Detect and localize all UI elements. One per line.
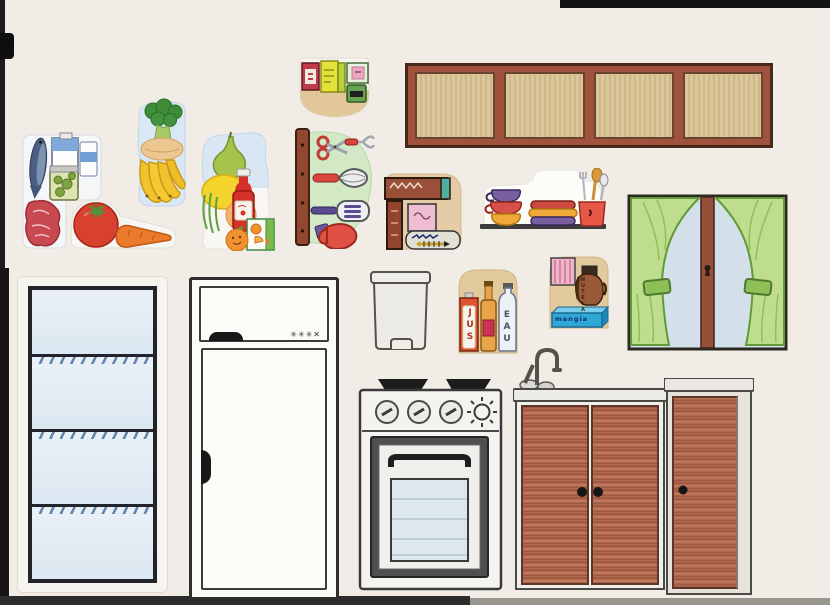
window-drawing [627, 194, 788, 353]
juice-label: JUS [465, 308, 474, 344]
stove-knobs [376, 401, 462, 423]
left-burner [378, 379, 428, 390]
spread-jar-label: NUTELA [580, 277, 585, 307]
side-cabinet-top [664, 378, 754, 391]
broccoli-banana-drawing [131, 98, 188, 210]
drinks-cutout: JUS EAU [455, 264, 521, 356]
pink-box [408, 204, 436, 231]
cabinet-panel-4 [683, 72, 763, 139]
right-door-knob [593, 487, 603, 497]
dishes-shelf-drawing [477, 168, 609, 238]
shelf-row-3 [32, 429, 153, 504]
freezer-symbols: ✳✳✳✕ [290, 330, 321, 339]
sink-counter [513, 389, 667, 401]
scanned-sheet: JUS EAU NUTELA mangia [0, 0, 830, 605]
oven-window [391, 479, 468, 561]
trash-pedal-notch [391, 339, 412, 349]
pantry-shelf-drawing [297, 56, 371, 120]
pickle-jar [50, 166, 78, 200]
cabinet-panel-1 [415, 72, 495, 139]
cookbook-shelf-drawing [384, 171, 466, 251]
utensil-rack-drawing [289, 127, 375, 249]
trash-can-drawing [367, 267, 434, 351]
vertical-book [387, 201, 402, 249]
water-label: EAU [502, 310, 511, 346]
faucet [520, 350, 562, 392]
bread [141, 138, 183, 160]
yellow-food-box [321, 61, 345, 92]
horizontal-book [385, 178, 450, 199]
shelf-row-2 [32, 354, 153, 429]
utensil-rack-cutout [289, 127, 375, 249]
window-curtains [627, 194, 788, 353]
cabinet-panel-2 [504, 72, 584, 139]
stove [358, 379, 503, 592]
side-cabinet [664, 378, 754, 598]
tomato-carrot-cutout [66, 196, 178, 252]
side-door-knob [679, 486, 688, 495]
white-fridge: ✳✳✳✕ [189, 277, 339, 600]
green-food-box [347, 63, 368, 83]
spread-shelf-cutout: NUTELA mangia [546, 253, 612, 332]
side-cabinet-drawing [664, 378, 754, 598]
sink-cabinet [513, 345, 667, 592]
right-burner [446, 379, 491, 390]
trash-lid [371, 272, 430, 283]
scan-edge-top-right [560, 0, 830, 8]
right-tieback [744, 279, 771, 296]
stove-drawing [358, 379, 503, 592]
stacked-dishes [529, 201, 577, 225]
freezer-door: ✳✳✳✕ [199, 286, 329, 342]
left-tieback [643, 279, 670, 296]
sink-cabinet-drawing [513, 345, 667, 592]
cookbook-shelf-cutout [384, 171, 466, 251]
cabinet-panel-3 [594, 72, 674, 139]
oven-door [371, 437, 488, 577]
blue-box-label: mangia [555, 315, 588, 323]
yogurt-pot [80, 142, 97, 176]
scan-edge-notch [0, 33, 14, 59]
fridge-handle [201, 450, 211, 484]
scan-edge-bottom-gray [470, 598, 830, 605]
fridge-door [201, 348, 327, 590]
scan-edge-left-lower [0, 268, 9, 605]
red-food-box [302, 63, 319, 90]
freezer-handle [209, 332, 243, 341]
open-shelf-unit [18, 277, 167, 592]
trash-can [367, 267, 434, 351]
broccoli-banana-cutout [131, 98, 188, 210]
striped-package [551, 258, 575, 285]
tomato-carrot-drawing [66, 196, 178, 252]
pear-lemon-drawing [197, 129, 275, 251]
steak [26, 201, 60, 246]
tomato [74, 203, 118, 247]
upper-cabinet [405, 63, 773, 148]
sardine-can [406, 231, 460, 249]
dishes-shelf-cutout [477, 168, 609, 238]
small-spoon [600, 174, 608, 186]
shelf-frame [28, 286, 157, 583]
shelf-row-1 [32, 290, 153, 354]
juice-box [247, 219, 274, 250]
green-can [347, 85, 366, 102]
shelf-row-4 [32, 504, 153, 579]
pear-lemon-cutout [197, 129, 275, 251]
oven-mitt [315, 223, 357, 249]
left-door-knob [577, 487, 587, 497]
pantry-shelf-cutout [297, 56, 371, 120]
